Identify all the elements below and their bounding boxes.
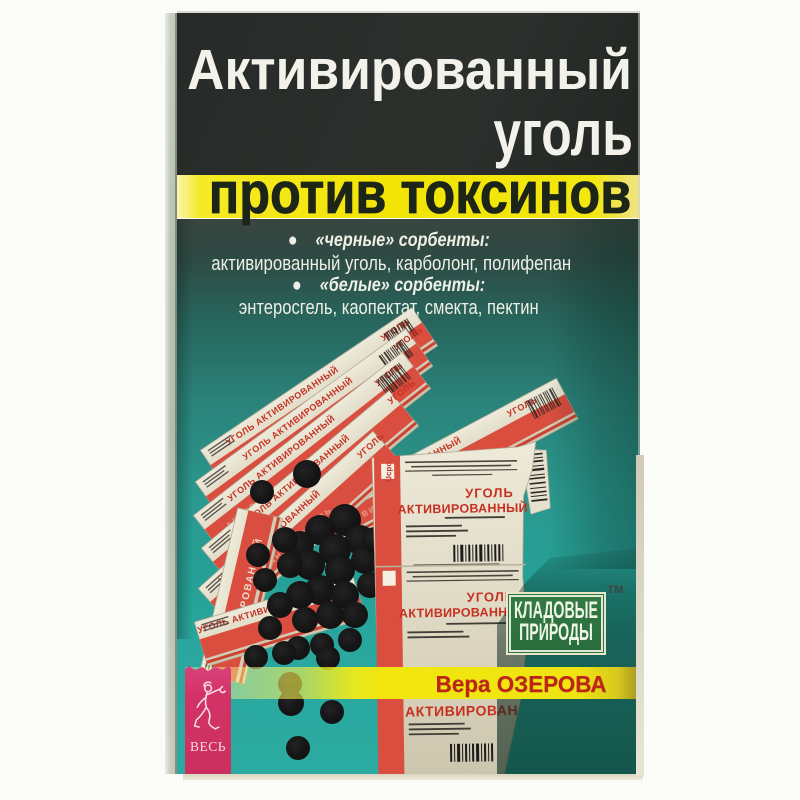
svg-text:АКТИВИРОВАННЫЙ: АКТИВИРОВАННЫЙ bbox=[397, 500, 528, 517]
svg-text:УГОЛЬ: УГОЛЬ bbox=[465, 485, 514, 501]
svg-text:Ucpo: Ucpo bbox=[384, 462, 393, 482]
